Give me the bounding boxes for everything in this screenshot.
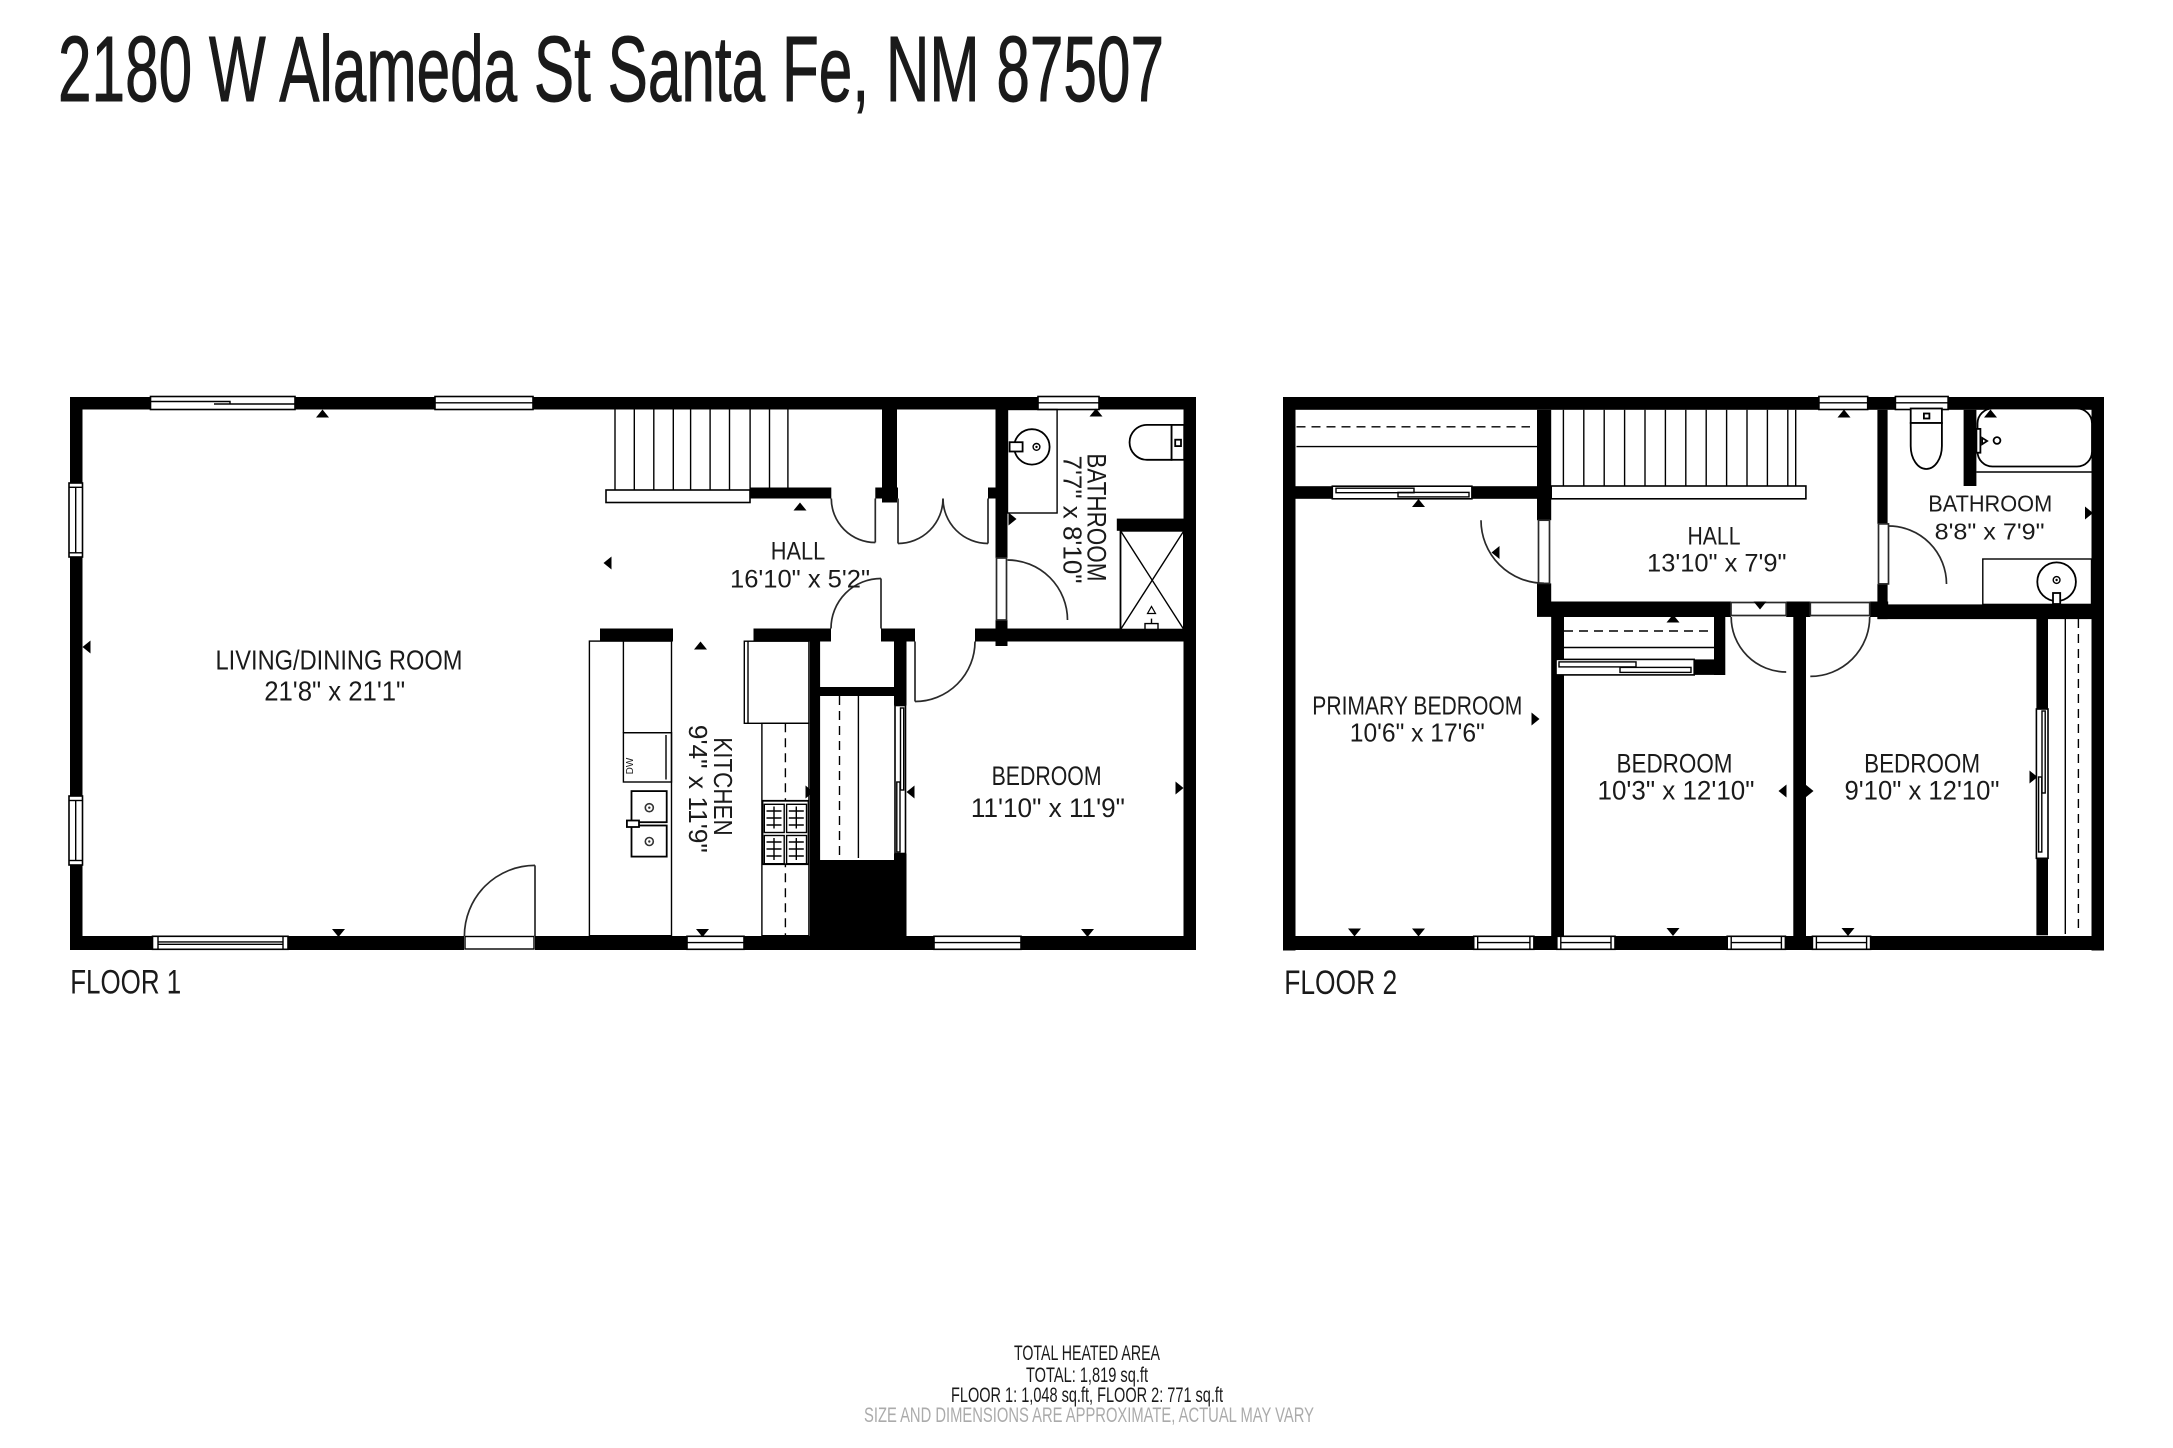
svg-text:9'4" x 11'9": 9'4" x 11'9"	[683, 725, 713, 853]
svg-text:10'3" x 12'10": 10'3" x 12'10"	[1598, 776, 1755, 806]
svg-text:BEDROOM: BEDROOM	[992, 761, 1102, 791]
svg-text:10'6" x 17'6": 10'6" x 17'6"	[1350, 718, 1485, 748]
svg-text:11'10" x 11'9": 11'10" x 11'9"	[971, 793, 1125, 823]
svg-text:BATHROOM: BATHROOM	[1928, 491, 2052, 517]
svg-text:9'10" x 12'10": 9'10" x 12'10"	[1845, 776, 2000, 806]
svg-text:FLOOR 2: FLOOR 2	[1284, 964, 1397, 1002]
svg-text:TOTAL HEATED AREA: TOTAL HEATED AREA	[1014, 1341, 1160, 1365]
svg-text:FLOOR 1: FLOOR 1	[70, 964, 181, 1002]
svg-text:21'8" x 21'1": 21'8" x 21'1"	[264, 675, 405, 706]
svg-text:SIZE AND DIMENSIONS ARE APPROX: SIZE AND DIMENSIONS ARE APPROXIMATE, ACT…	[864, 1403, 1314, 1427]
svg-text:2180 W Alameda St Santa Fe, NM: 2180 W Alameda St Santa Fe, NM 87507	[58, 17, 1164, 121]
svg-text:7'7" x 8'10": 7'7" x 8'10"	[1057, 456, 1087, 584]
svg-text:DW: DW	[625, 757, 636, 774]
svg-text:BEDROOM: BEDROOM	[1617, 748, 1733, 778]
svg-text:16'10" x 5'2": 16'10" x 5'2"	[730, 565, 870, 593]
svg-text:PRIMARY BEDROOM: PRIMARY BEDROOM	[1312, 691, 1522, 721]
svg-text:13'10" x 7'9": 13'10" x 7'9"	[1647, 550, 1787, 578]
svg-text:8'8" x 7'9": 8'8" x 7'9"	[1935, 519, 2045, 545]
svg-text:LIVING/DINING ROOM: LIVING/DINING ROOM	[216, 644, 463, 675]
svg-text:BEDROOM: BEDROOM	[1864, 748, 1980, 778]
svg-text:HALL: HALL	[1688, 522, 1741, 550]
svg-text:HALL: HALL	[771, 537, 826, 565]
